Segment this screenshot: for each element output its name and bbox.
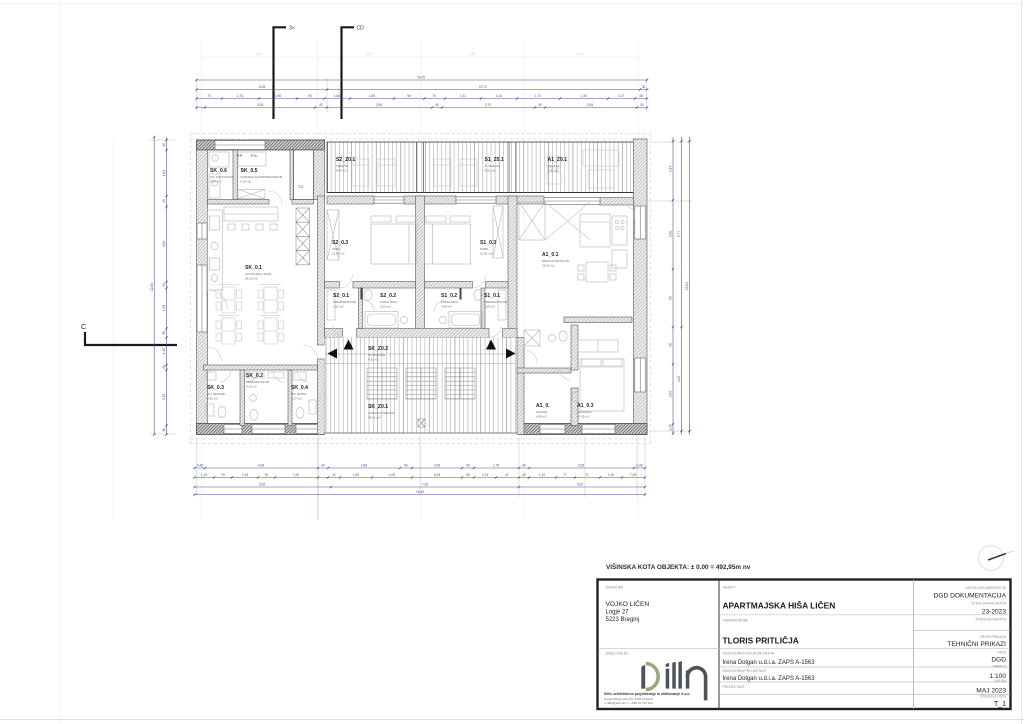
svg-text:90: 90 <box>308 94 312 98</box>
svg-text:1,10: 1,10 <box>539 473 545 477</box>
svg-text:1,80: 1,80 <box>353 473 359 477</box>
svg-text:ŠTEVILKA NAČRTA: ŠTEVILKA NAČRTA <box>975 617 1006 622</box>
svg-text:36: 36 <box>162 331 166 335</box>
svg-text:S1_0.2: S1_0.2 <box>441 293 457 299</box>
svg-text:Irena Dolgan u.d.i.a. ZAPS A-: Irena Dolgan u.d.i.a. ZAPS A-1563 <box>723 660 816 666</box>
svg-text:1,96: 1,96 <box>275 94 281 98</box>
svg-text:20: 20 <box>162 365 166 369</box>
svg-text:4,35: 4,35 <box>469 52 476 56</box>
svg-text:Logje 27: Logje 27 <box>606 610 630 616</box>
svg-text:7,36: 7,36 <box>422 483 428 487</box>
svg-text:ŠTEVILKA PROJEKTA: ŠTEVILKA PROJEKTA <box>971 601 1006 606</box>
svg-text:8,90 m2: 8,90 m2 <box>336 168 347 172</box>
svg-text:10,95 m2: 10,95 m2 <box>577 414 590 418</box>
svg-text:40: 40 <box>640 103 644 107</box>
svg-text:4,25: 4,25 <box>366 52 373 56</box>
svg-text:DGD: DGD <box>991 657 1006 664</box>
svg-text:4,32 m2: 4,32 m2 <box>368 357 379 361</box>
svg-text:A1_0.1: A1_0.1 <box>542 252 559 258</box>
svg-text:1,81: 1,81 <box>162 170 166 176</box>
svg-text:40: 40 <box>522 473 526 477</box>
svg-text:79: 79 <box>221 473 225 477</box>
svg-text:DGD DOKUMENTACIJA: DGD DOKUMENTACIJA <box>934 593 1007 600</box>
svg-text:3,55: 3,55 <box>376 103 382 107</box>
svg-text:ODGOVORNI VODJA PROJEKTA: ODGOVORNI VODJA PROJEKTA <box>723 652 775 656</box>
svg-text:Irena Dolgan u.d.i.a. ZAPS A-: Irena Dolgan u.d.i.a. ZAPS A-1563 <box>723 676 816 682</box>
svg-text:VRSTA DOKUMENTACIJE: VRSTA DOKUMENTACIJE <box>965 586 1006 590</box>
svg-text:8,90 m2: 8,90 m2 <box>548 168 559 172</box>
svg-text:16,45: 16,45 <box>417 76 425 80</box>
svg-text:2,65 m2: 2,65 m2 <box>484 304 495 308</box>
svg-text:T_1: T_1 <box>994 701 1006 708</box>
svg-text:40: 40 <box>162 143 166 147</box>
svg-text:5,28: 5,28 <box>259 85 265 89</box>
svg-text:S1_Z0.1: S1_Z0.1 <box>485 157 504 163</box>
svg-text:1,90: 1,90 <box>581 94 587 98</box>
svg-text:4,10: 4,10 <box>577 52 584 56</box>
svg-text:e: dilln@siol.net | t: +386 31: e: dilln@siol.net | t: +386 31 744 222 <box>604 701 653 705</box>
svg-text:PROJEKTANT: PROJEKTANT <box>723 685 745 689</box>
svg-text:SK_0.4: SK_0.4 <box>291 385 308 391</box>
svg-text:1,65: 1,65 <box>334 94 340 98</box>
svg-text:SK_0.2: SK_0.2 <box>246 373 263 379</box>
svg-text:30: 30 <box>642 85 646 89</box>
svg-text:76: 76 <box>264 473 268 477</box>
svg-text:16,45: 16,45 <box>416 490 424 494</box>
svg-text:12,70: 12,70 <box>479 85 487 89</box>
svg-text:1,51: 1,51 <box>460 94 466 98</box>
svg-text:1,03: 1,03 <box>482 473 488 477</box>
svg-text:71: 71 <box>585 473 589 477</box>
svg-text:VOJKO LIČEN: VOJKO LIČEN <box>606 599 650 608</box>
svg-text:36: 36 <box>162 428 166 432</box>
svg-text:S2_Z0.1: S2_Z0.1 <box>336 157 355 163</box>
svg-text:SK_Z0.2: SK_Z0.2 <box>368 346 388 352</box>
svg-text:A1_0.: A1_0. <box>536 403 550 409</box>
svg-text:ŠTEVILKA LISTA: ŠTEVILKA LISTA <box>980 694 1007 699</box>
svg-text:SK_Z0.1: SK_Z0.1 <box>368 404 388 410</box>
svg-text:1,40: 1,40 <box>608 473 614 477</box>
svg-text:4,24 m2: 4,24 m2 <box>241 179 252 183</box>
svg-text:45: 45 <box>466 464 470 468</box>
svg-text:5,05: 5,05 <box>577 483 583 487</box>
svg-text:4,56 m2: 4,56 m2 <box>536 414 547 418</box>
svg-text:40: 40 <box>319 103 323 107</box>
svg-text:MAJ 2023: MAJ 2023 <box>976 688 1006 695</box>
svg-text:OBJEKT: OBJEKT <box>723 586 736 590</box>
svg-text:40: 40 <box>321 464 325 468</box>
svg-text:1,85: 1,85 <box>369 94 375 98</box>
svg-text:S1_0.1: S1_0.1 <box>484 293 500 299</box>
svg-text:NAROČNIK: NAROČNIK <box>606 585 625 590</box>
svg-text:3,20 m2: 3,20 m2 <box>380 304 391 308</box>
svg-text:12,06: 12,06 <box>150 283 154 291</box>
svg-text:S2_0.1: S2_0.1 <box>333 293 349 299</box>
svg-text:TLORIS PRITLIČJA: TLORIS PRITLIČJA <box>723 635 799 646</box>
svg-text:25: 25 <box>162 283 166 287</box>
svg-text:5,00: 5,00 <box>669 231 673 237</box>
svg-text:1,07: 1,07 <box>618 94 624 98</box>
svg-text:7,25: 7,25 <box>630 473 636 477</box>
svg-text:S2_0.3: S2_0.3 <box>332 240 348 246</box>
svg-text:ODGOVORNI PROJEKTANT: ODGOVORNI PROJEKTANT <box>723 669 767 673</box>
svg-text:98: 98 <box>407 94 411 98</box>
svg-text:A1_0.3: A1_0.3 <box>577 403 594 409</box>
svg-text:0,06: 0,06 <box>636 464 642 468</box>
svg-text:50: 50 <box>404 464 408 468</box>
svg-text:40: 40 <box>435 103 439 107</box>
svg-text:VSEBINA RISBE: VSEBINA RISBE <box>723 619 749 623</box>
svg-text:28,29 m2: 28,29 m2 <box>245 276 258 280</box>
svg-text:3,46 m2: 3,46 m2 <box>441 304 452 308</box>
svg-text:S1_0.3: S1_0.3 <box>480 240 496 246</box>
svg-text:23-2023: 23-2023 <box>982 609 1007 616</box>
svg-text:23,06 m2: 23,06 m2 <box>542 263 555 267</box>
svg-text:A1_Z0.1: A1_Z0.1 <box>548 157 568 163</box>
svg-text:VRSTA PRIKAZA: VRSTA PRIKAZA <box>980 635 1007 639</box>
svg-text:P.P.: P.P. <box>237 154 243 158</box>
svg-text:7,29: 7,29 <box>293 473 299 477</box>
svg-text:APARTMAJSKA HIŠA LIČEN: APARTMAJSKA HIŠA LIČEN <box>723 600 836 611</box>
svg-text:5,05: 5,05 <box>434 473 440 477</box>
svg-text:76: 76 <box>432 94 436 98</box>
svg-text:98: 98 <box>669 343 673 347</box>
svg-text:SK_0.1: SK_0.1 <box>245 265 262 271</box>
svg-text:2,88: 2,88 <box>361 464 367 468</box>
svg-text:3,06 m2: 3,06 m2 <box>207 396 218 400</box>
svg-text:1,45: 1,45 <box>669 424 673 430</box>
svg-text:1,43: 1,43 <box>496 94 502 98</box>
svg-text:77: 77 <box>563 473 567 477</box>
svg-text:3,06: 3,06 <box>162 241 166 247</box>
svg-text:11,96 m2: 11,96 m2 <box>480 251 493 255</box>
svg-text:S2_0.2: S2_0.2 <box>380 293 396 299</box>
svg-text:3>: 3> <box>289 26 295 32</box>
svg-text:41: 41 <box>332 473 336 477</box>
svg-text:46,61 m2: 46,61 m2 <box>368 415 381 419</box>
svg-text:2,99 m2: 2,99 m2 <box>210 179 221 183</box>
svg-text:3,65: 3,65 <box>587 103 593 107</box>
svg-text:P.G.: P.G. <box>251 154 258 158</box>
svg-text:2,08: 2,08 <box>434 464 440 468</box>
svg-text:45: 45 <box>466 473 470 477</box>
svg-text:3,52: 3,52 <box>669 391 673 397</box>
svg-text:12,64: 12,64 <box>685 282 689 290</box>
svg-text:SK_0.3: SK_0.3 <box>207 385 224 391</box>
svg-text:4,38: 4,38 <box>258 464 264 468</box>
svg-text:47: 47 <box>505 473 509 477</box>
svg-text:1,58: 1,58 <box>162 305 166 311</box>
svg-text:5223 Breginj: 5223 Breginj <box>606 617 640 623</box>
svg-text:4,19: 4,19 <box>256 52 263 56</box>
svg-text:45: 45 <box>162 199 166 203</box>
svg-text:SK_0.5: SK_0.5 <box>241 168 258 174</box>
svg-text:73: 73 <box>207 94 211 98</box>
svg-text:1,05: 1,05 <box>389 473 395 477</box>
svg-text:1,10: 1,10 <box>162 348 166 354</box>
svg-text:4,35: 4,35 <box>578 464 584 468</box>
svg-text:1,53: 1,53 <box>242 473 248 477</box>
svg-text:DATUM: DATUM <box>994 679 1006 683</box>
svg-text:1,19: 1,19 <box>201 473 207 477</box>
svg-text:1,76: 1,76 <box>237 94 243 98</box>
svg-text:C: C <box>81 324 86 331</box>
svg-text:5,77: 5,77 <box>677 231 681 237</box>
svg-text:8,31 m2: 8,31 m2 <box>485 168 496 172</box>
svg-text:FAZA: FAZA <box>998 651 1007 655</box>
svg-text:5,36: 5,36 <box>259 483 265 487</box>
svg-text:4,07 m2: 4,07 m2 <box>291 396 302 400</box>
svg-text:2,15: 2,15 <box>162 394 166 400</box>
svg-text:4,10 m2: 4,10 m2 <box>246 384 257 388</box>
svg-text:4,35: 4,35 <box>257 103 263 107</box>
svg-text:2,62 m2: 2,62 m2 <box>333 304 344 308</box>
svg-text:0,45: 0,45 <box>197 464 203 468</box>
svg-text:Dilln, arhitekturno projektira: Dilln, arhitekturno projektiranje in obl… <box>604 692 691 696</box>
svg-text:3,14: 3,14 <box>669 166 673 172</box>
svg-text:IZDELOVALEC: IZDELOVALEC <box>606 652 630 656</box>
svg-text:45: 45 <box>639 94 643 98</box>
svg-text:T.C.: T.C. <box>298 185 304 189</box>
svg-text:40: 40 <box>538 103 542 107</box>
svg-text:SK_0.6: SK_0.6 <box>210 168 227 174</box>
svg-text:1,70: 1,70 <box>535 94 541 98</box>
svg-text:MERILO: MERILO <box>993 665 1006 669</box>
svg-text:VIŠINSKA KOTA OBJEKTA: ± 0.00: VIŠINSKA KOTA OBJEKTA: ± 0.00 = 492,95m … <box>606 562 751 571</box>
svg-text:3,70: 3,70 <box>485 103 491 107</box>
svg-text:13,94 m2: 13,94 m2 <box>332 251 345 255</box>
svg-text:CD: CD <box>357 26 365 32</box>
svg-text:60: 60 <box>669 296 673 300</box>
svg-text:4,09: 4,09 <box>677 376 681 382</box>
svg-text:1,75: 1,75 <box>493 464 499 468</box>
svg-text:TEHNIČNI PRIKAZI: TEHNIČNI PRIKAZI <box>947 639 1006 648</box>
svg-text:40: 40 <box>522 464 526 468</box>
